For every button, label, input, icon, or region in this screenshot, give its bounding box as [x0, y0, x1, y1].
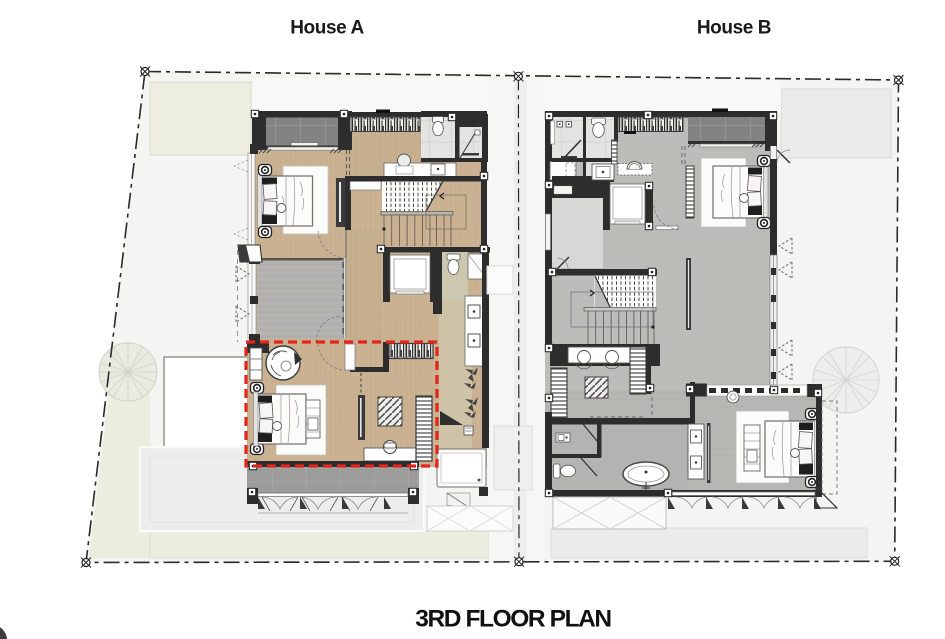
svg-text:House A: House A [290, 18, 364, 39]
svg-text:House B: House B [697, 18, 771, 39]
svg-text:3RD FLOOR PLAN: 3RD FLOOR PLAN [415, 606, 611, 633]
